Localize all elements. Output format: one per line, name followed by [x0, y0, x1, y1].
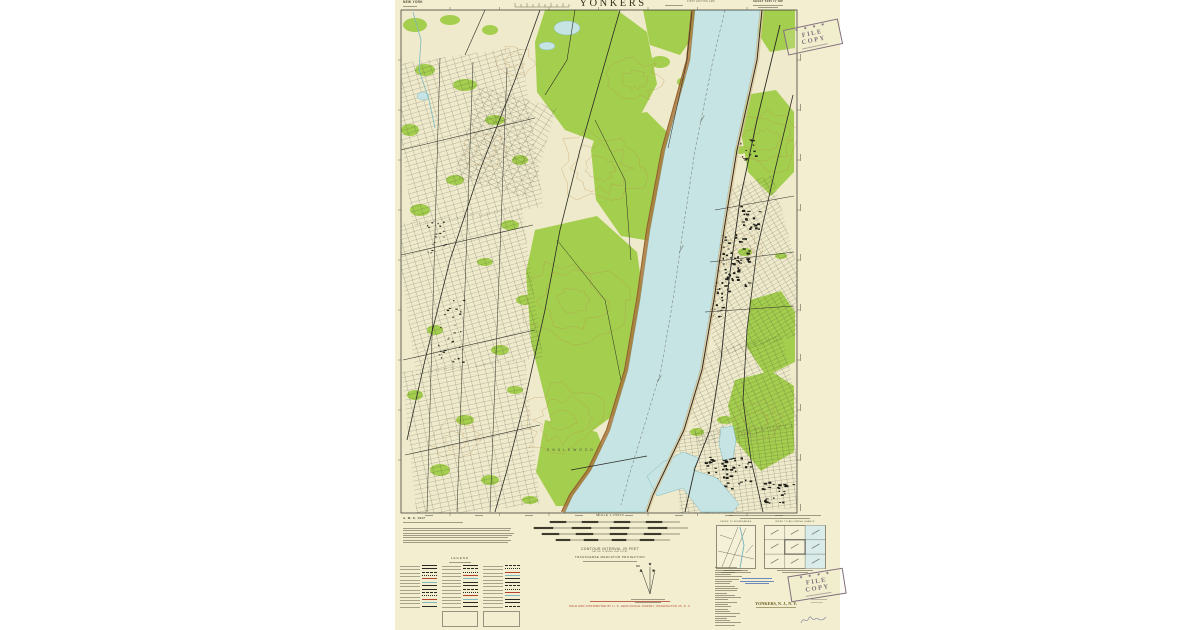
microtext-line	[715, 616, 736, 617]
reservoir	[719, 426, 736, 460]
legend-label	[442, 590, 462, 591]
title-subnote	[665, 4, 685, 6]
microtext-line	[715, 620, 730, 621]
pond	[417, 92, 429, 100]
legend-label	[400, 597, 420, 598]
microtext-line	[715, 613, 740, 614]
legend-label	[483, 603, 503, 604]
map-name-block: YONKERS, N. J., N. Y.	[743, 601, 809, 608]
legend-label	[483, 593, 503, 594]
microtext-line	[715, 574, 731, 575]
sheet-title: YONKERS	[563, 0, 663, 9]
legend-label	[483, 569, 503, 570]
microtext-line	[715, 625, 735, 626]
microtext-line	[715, 599, 728, 600]
legend-label	[400, 569, 420, 570]
legend-label	[400, 590, 420, 591]
microtext-line	[715, 602, 737, 603]
sheet-number-block: SHEET 6265 IV NW	[743, 0, 793, 8]
microtext-line	[715, 572, 735, 573]
index-adjoining-diagram	[764, 525, 826, 569]
legend-row	[483, 606, 520, 609]
legend-label	[483, 580, 503, 581]
legend: LEGEND	[400, 557, 520, 627]
microtext-line	[715, 576, 742, 577]
legend-label	[442, 583, 462, 584]
legend-box	[483, 611, 520, 627]
legend-label	[483, 566, 503, 567]
legend-label	[442, 580, 462, 581]
microtext-line	[758, 7, 778, 8]
legend-label	[400, 603, 420, 604]
microtext-line	[742, 578, 772, 579]
scale-block: SCALE 1:25000 CONTOUR INTERVAL 20 FEET D…	[530, 514, 690, 562]
legend-label	[483, 583, 503, 584]
microtext-line	[403, 535, 512, 536]
microtext-line	[403, 533, 514, 534]
credit-paragraph	[403, 528, 515, 543]
microtext-line	[753, 5, 783, 6]
legend-label	[442, 597, 462, 598]
legend-label	[483, 607, 503, 608]
map-place-label: E N G L E W O O D	[547, 448, 594, 452]
index-adjoining: INDEX TO ADJOINING SHEETS	[763, 521, 827, 573]
declination-diagram: ★ MN	[627, 560, 669, 603]
index-boundaries-diagram	[716, 525, 756, 569]
microtext-line	[403, 540, 511, 541]
legend-title: LEGEND	[400, 557, 520, 561]
credit-block: A. M. S. 1947	[403, 517, 515, 543]
numbered-feature-list	[715, 566, 745, 626]
microtext-line	[715, 595, 735, 596]
microtext-line	[715, 618, 727, 619]
contour-sub: DATUM IS MEAN SEA LEVEL	[530, 551, 690, 554]
svg-text:★: ★	[648, 562, 653, 567]
legend-column	[442, 565, 479, 627]
blue-stamp-note	[739, 577, 775, 584]
legend-label	[442, 603, 462, 604]
legend-label	[442, 569, 462, 570]
microtext-line	[449, 562, 471, 563]
microtext-line	[715, 588, 738, 589]
legend-symbol	[505, 606, 520, 609]
microtext-line	[715, 581, 732, 582]
legend-table	[400, 565, 520, 627]
index-boundaries-caption: INDEX TO BOUNDARIES	[715, 521, 757, 524]
scale-bars	[530, 519, 690, 545]
date-stamp-mark	[811, 598, 831, 603]
pond	[554, 21, 580, 35]
street-grid	[402, 359, 541, 517]
microtext-line	[756, 607, 796, 608]
legend-box	[442, 611, 479, 627]
legend-label	[400, 607, 420, 608]
microtext-line	[715, 609, 728, 610]
legend-symbol	[422, 606, 437, 609]
grid-note	[725, 514, 825, 519]
legend-label	[400, 600, 420, 601]
legend-label	[483, 573, 503, 574]
microtext-line	[715, 583, 730, 584]
edition-note: FIRST EDITION AMS	[687, 1, 715, 4]
legend-label	[400, 593, 420, 594]
map-name: YONKERS, N. J., N. Y.	[743, 601, 809, 606]
index-adjoining-caption: INDEX TO ADJOINING SHEETS	[763, 521, 827, 524]
legend-label	[483, 597, 503, 598]
microtext-line	[403, 6, 417, 7]
microtext-line	[715, 579, 739, 580]
microtext-line	[777, 570, 813, 571]
microtext-line	[715, 606, 731, 607]
legend-label	[400, 573, 420, 574]
microtext-line	[715, 604, 728, 605]
legend-label	[442, 586, 462, 587]
microtext-line	[590, 601, 670, 602]
legend-label	[442, 600, 462, 601]
microtext-line	[740, 518, 810, 519]
microtext-line	[729, 515, 821, 516]
credit-heading: A. M. S. 1947	[403, 517, 515, 521]
page-background: E N G L E W O O D NEW YORK YONKERS FIRST…	[0, 0, 1200, 630]
legend-label	[483, 576, 503, 577]
legend-label	[400, 580, 420, 581]
legend-label	[483, 600, 503, 601]
street-grid	[395, 207, 543, 375]
legend-label	[442, 573, 462, 574]
microtext-line	[715, 597, 741, 598]
microtext-line	[403, 528, 511, 529]
legend-label	[483, 590, 503, 591]
legend-row	[400, 606, 437, 609]
legend-label	[442, 593, 462, 594]
microtext-line	[715, 590, 737, 591]
microtext-line	[811, 599, 827, 600]
scale-label: SCALE 1:25000	[530, 514, 690, 518]
pond	[539, 42, 555, 50]
sheet-number: SHEET 6265 IV NW	[743, 0, 793, 3]
microtext-line	[715, 570, 741, 571]
legend-label	[400, 566, 420, 567]
legend-symbol	[463, 606, 478, 609]
microtext-line	[745, 583, 769, 584]
declination-arrows: ★ MN	[627, 560, 669, 598]
microtext-line	[403, 522, 463, 523]
microtext-line	[715, 567, 737, 568]
microtext-line	[715, 593, 727, 594]
microtext-line	[811, 602, 823, 603]
microtext-line	[403, 537, 508, 538]
legend-label	[442, 576, 462, 577]
legend-column	[483, 565, 520, 627]
microtext-line	[715, 622, 741, 623]
legend-row	[442, 606, 479, 609]
map-sheet: E N G L E W O O D NEW YORK YONKERS FIRST…	[395, 0, 840, 630]
map-layers: E N G L E W O O D	[395, 10, 814, 517]
microtext-line	[740, 581, 774, 582]
microtext-line	[403, 530, 510, 531]
distribution-block: SOLD AND DISTRIBUTED BY U. S. GEOLOGICAL…	[545, 600, 715, 608]
legend-label	[483, 586, 503, 587]
microtext-line	[665, 5, 683, 6]
handwritten-mark	[799, 613, 829, 627]
legend-label	[442, 566, 462, 567]
svg-text:MN: MN	[636, 564, 640, 568]
microtext-line	[715, 586, 735, 587]
microtext-line	[403, 542, 508, 543]
state-label: NEW YORK	[403, 1, 423, 7]
distribution-note: SOLD AND DISTRIBUTED BY U. S. GEOLOGICAL…	[545, 604, 715, 608]
microtext-line	[715, 611, 730, 612]
legend-label	[400, 576, 420, 577]
legend-label	[442, 607, 462, 608]
legend-label	[400, 583, 420, 584]
state-label-text: NEW YORK	[403, 0, 423, 4]
legend-label	[400, 586, 420, 587]
legend-column	[400, 565, 437, 627]
